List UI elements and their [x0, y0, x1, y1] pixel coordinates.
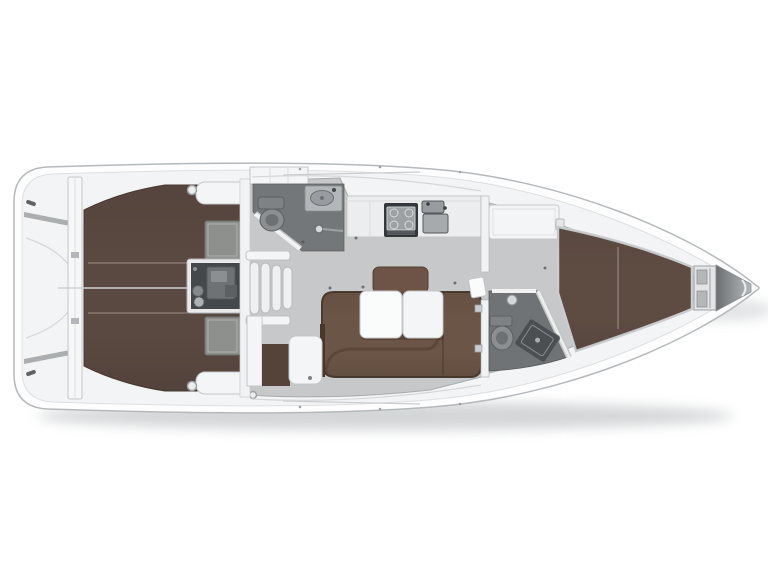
transom-hinge-port [71, 252, 79, 258]
oven-front [387, 231, 415, 235]
engine-bolt [193, 267, 197, 271]
galley-faucet-2 [443, 206, 447, 210]
bulkhead-upper [481, 196, 489, 272]
stanchion-4 [299, 406, 302, 409]
stanchion-1 [299, 168, 302, 171]
engine-compartment [187, 259, 245, 313]
floor-plan-drawing [0, 0, 768, 576]
forward-toilet-bowl-inner [496, 332, 508, 345]
galley [347, 196, 481, 237]
step-4 [283, 267, 292, 309]
backrest-cushion [373, 267, 428, 293]
stanchion-6 [459, 403, 462, 406]
aft-shower-drain [302, 241, 305, 244]
transom-hinge-starboard [71, 318, 79, 324]
forward-toilet-tank [490, 316, 512, 326]
aft-shower-head [315, 225, 323, 233]
aft-faucet [332, 188, 336, 192]
engine-block-top [211, 271, 227, 282]
saloon-table-leaf-left [360, 291, 402, 338]
chart-table-leg [308, 376, 312, 380]
forward-washbasin [507, 295, 517, 305]
door-hinge-2 [475, 345, 482, 352]
step-2 [261, 263, 270, 313]
galley-sink-large [423, 214, 448, 233]
forward-shelf [489, 205, 559, 239]
galley-sink-small [422, 201, 444, 213]
door-hinge-1 [475, 305, 482, 312]
galley-faucet-1 [426, 202, 430, 206]
yacht-floor-plan [0, 0, 768, 576]
engine-pulley-lower [194, 297, 204, 307]
step-3 [272, 265, 281, 311]
companionway-rail-port [246, 251, 290, 260]
winch-starboard-fwd [250, 392, 257, 399]
aft-washbasin-drain [320, 196, 324, 200]
stanchion-5 [379, 408, 382, 411]
engine-pulley-upper [193, 286, 204, 297]
aft-toilet-tank [258, 197, 284, 209]
wardrobe [247, 316, 262, 386]
cockpit-hatch-starboard [205, 317, 240, 355]
engine-gearbox [225, 285, 237, 297]
floor-fitting-2 [362, 286, 365, 289]
anchor-locker-box-2 [697, 291, 707, 307]
anchor-locker-box-1 [697, 270, 707, 284]
floor-fitting-4 [355, 237, 358, 240]
step-1 [250, 262, 259, 314]
cabin-door [468, 277, 486, 298]
winch-starboard-aft [188, 382, 197, 391]
floor-fitting-1 [329, 287, 332, 290]
stanchion-3 [459, 171, 462, 174]
aft-cabin-entry-floor [262, 344, 290, 386]
floor-fitting-5 [544, 267, 547, 270]
cockpit-hatch-port [205, 221, 240, 259]
aft-toilet-bowl-inner [266, 214, 279, 226]
floor-fitting-3 [454, 282, 457, 285]
stanchion-2 [379, 166, 382, 169]
winch-port-aft [188, 186, 197, 195]
chart-table [289, 336, 322, 384]
saloon-table-leaf-right [403, 291, 443, 338]
